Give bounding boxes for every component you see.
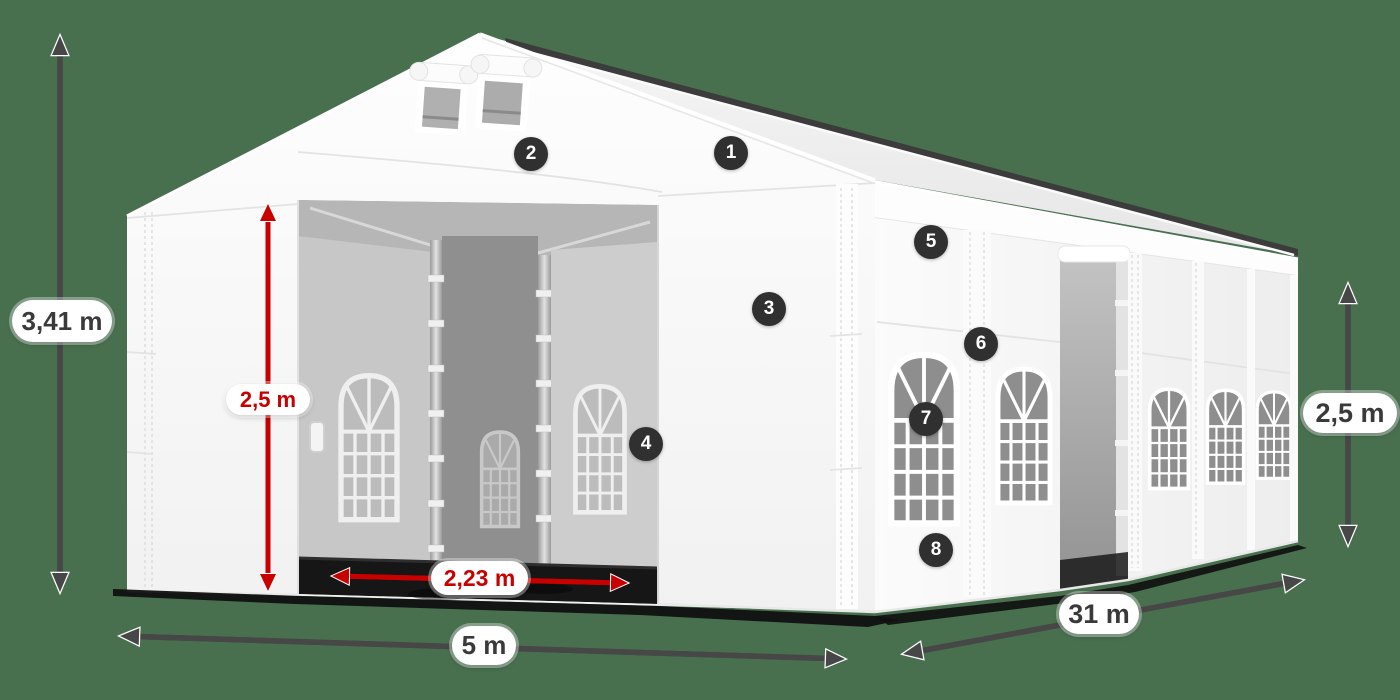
side-window — [998, 369, 1050, 503]
dimension-label-total-height: 3,41 m — [12, 300, 112, 342]
hotspot-badge-4: 4 — [629, 427, 663, 461]
dimension-label-door-width: 2,23 m — [431, 561, 528, 595]
door-opening-interior — [298, 200, 658, 604]
hotspot-badge-6: 6 — [964, 327, 998, 361]
hotspot-badge-5: 5 — [914, 225, 948, 259]
dimension-label-side-height: 2,5 m — [1303, 393, 1397, 433]
side-window — [891, 355, 957, 523]
side-window — [1207, 390, 1243, 483]
door-panel-window — [341, 376, 397, 520]
hotspot-badge-3: 3 — [752, 292, 786, 326]
door-panel-window — [576, 386, 625, 512]
hotspot-badge-7: 7 — [909, 402, 943, 436]
dimension-label-length: 31 m — [1059, 594, 1139, 634]
side-window — [1150, 389, 1189, 488]
hotspot-badge-1: 1 — [714, 136, 748, 170]
dimension-label-front-width: 5 m — [452, 626, 516, 665]
side-window — [1257, 392, 1291, 478]
door-handle — [310, 422, 324, 452]
hotspot-badge-8: 8 — [919, 533, 953, 567]
side-door-opening — [1058, 246, 1130, 590]
tent-illustration — [0, 0, 1400, 700]
tent-dimension-diagram: 3,41 m 2,5 m 2,23 m 5 m 31 m 2,5 m 1 2 3… — [0, 0, 1400, 700]
hotspot-badge-2: 2 — [514, 137, 548, 171]
dimension-label-door-height: 2,5 m — [226, 384, 310, 415]
